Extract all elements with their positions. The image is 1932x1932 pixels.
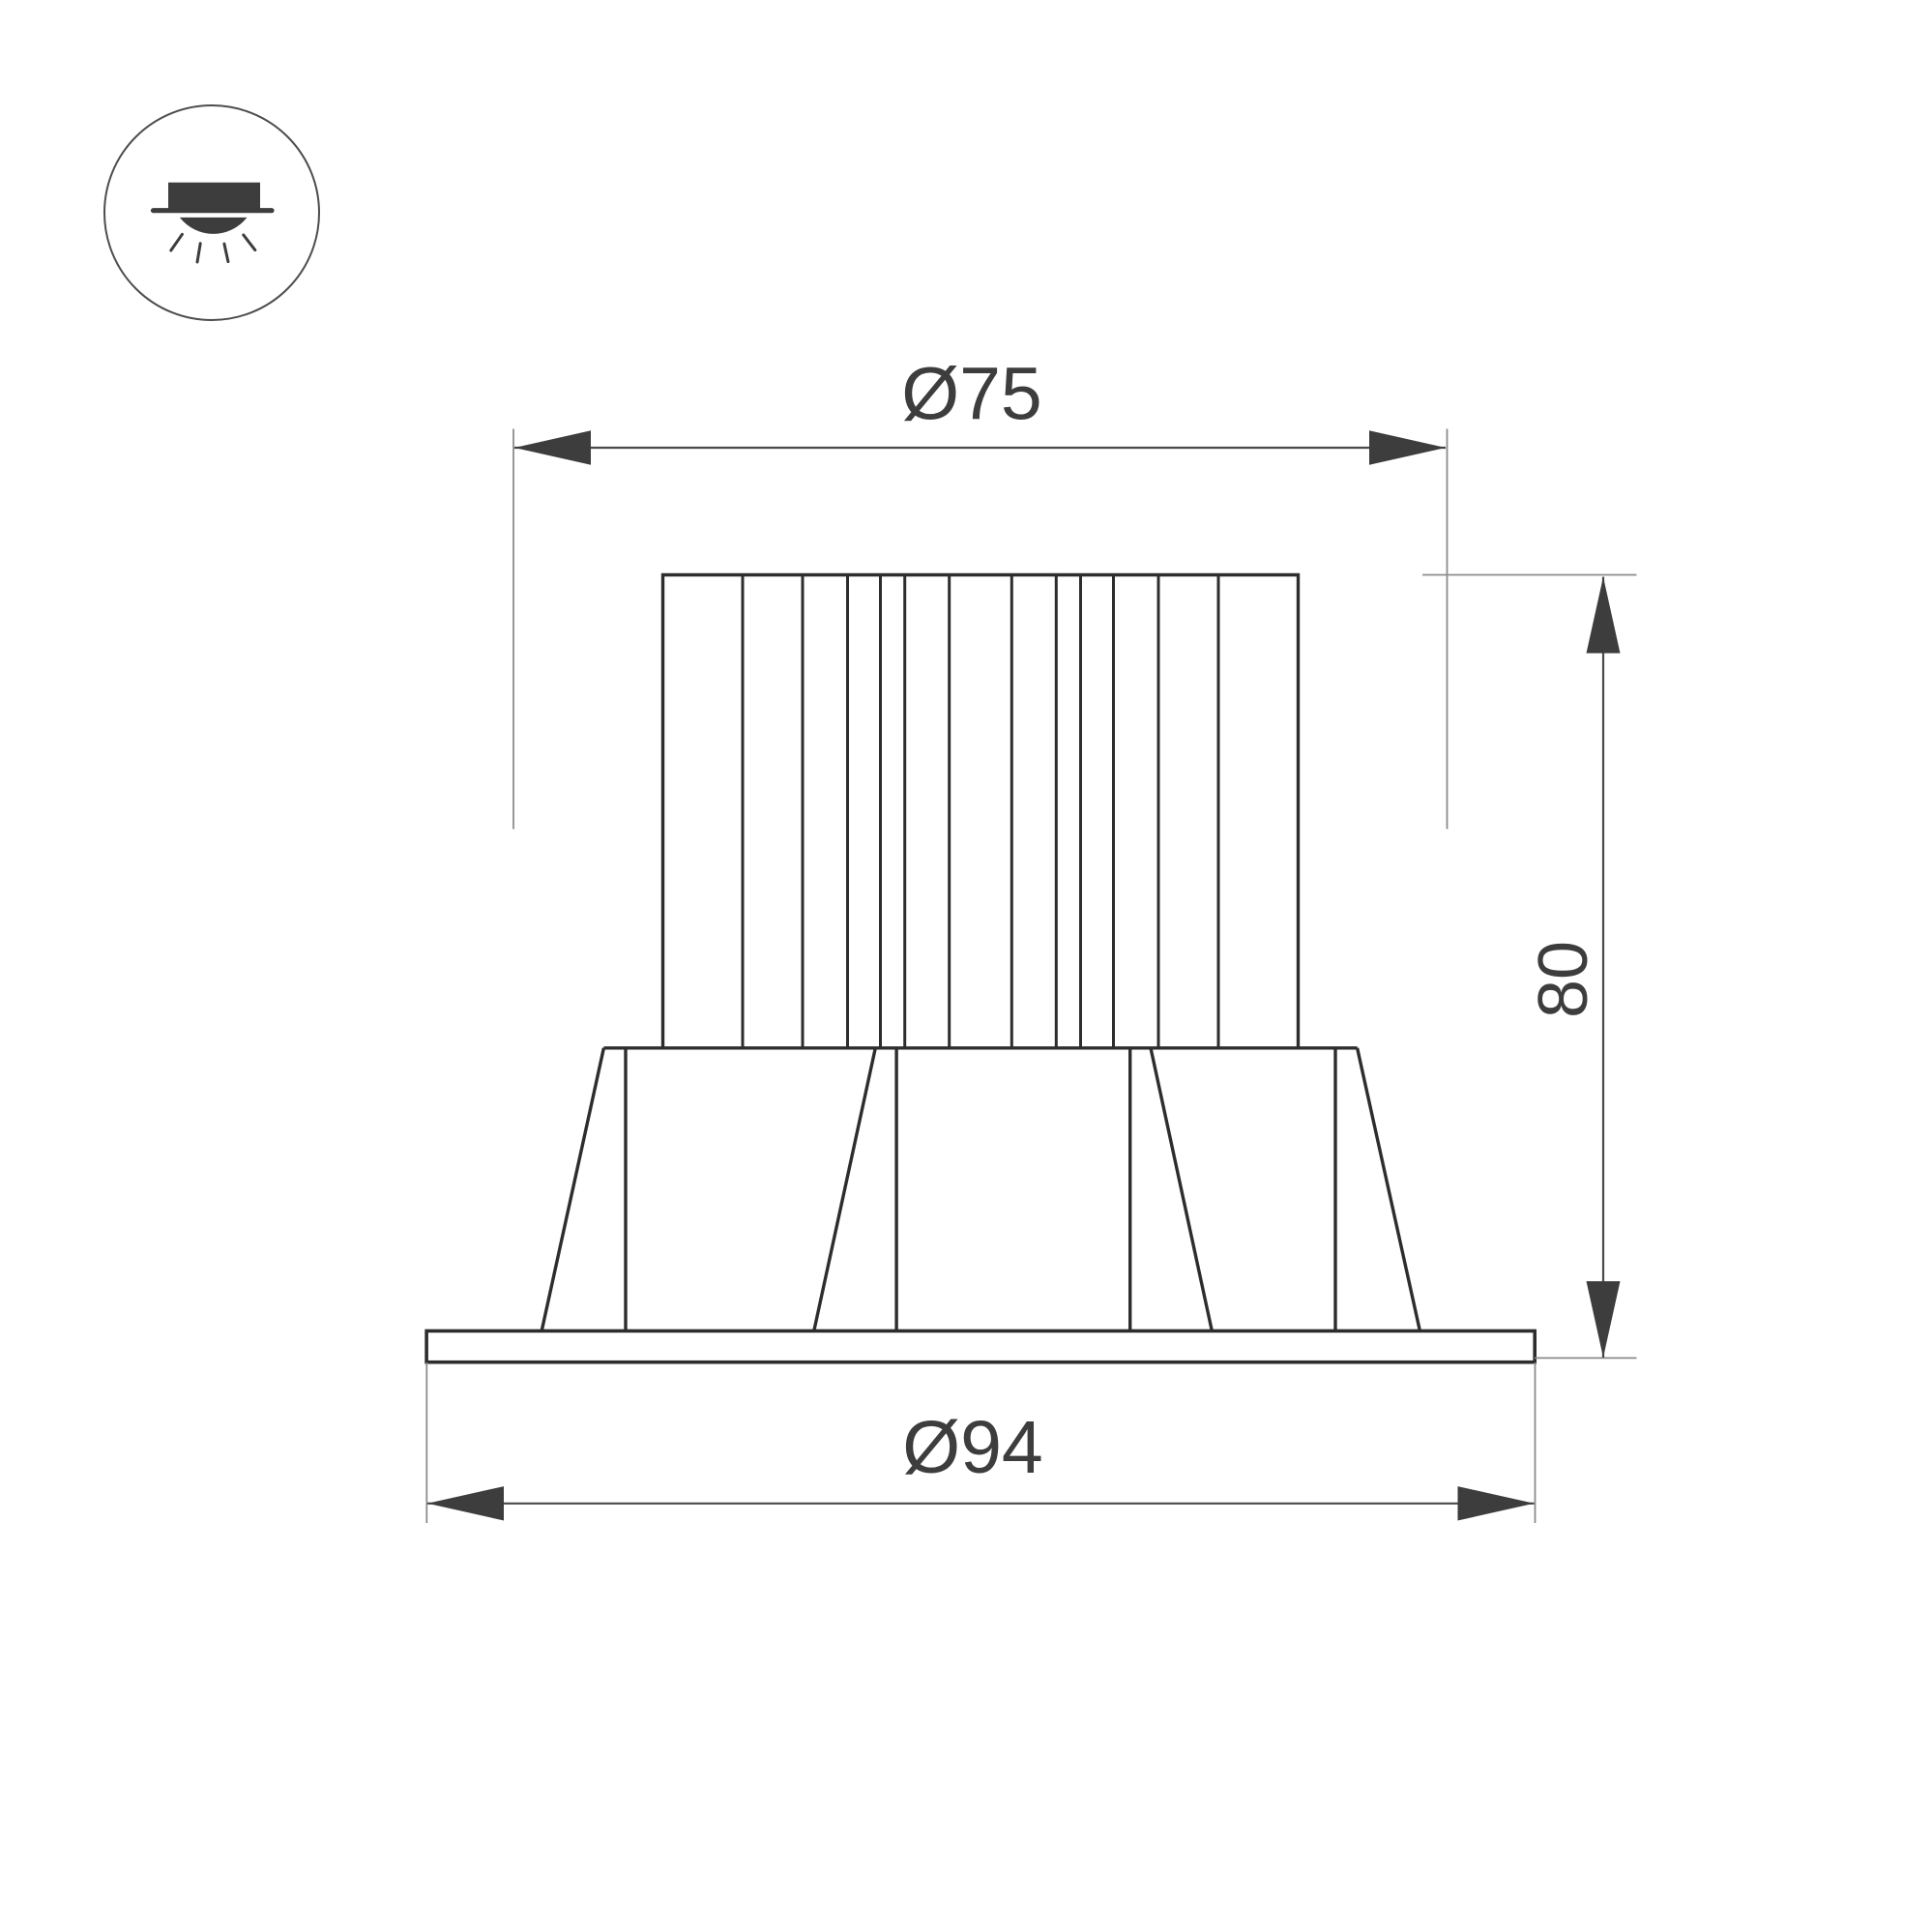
svg-text:Ø75: Ø75 <box>901 353 1042 436</box>
svg-text:80: 80 <box>1525 941 1602 1018</box>
svg-text:Ø94: Ø94 <box>902 1406 1043 1489</box>
